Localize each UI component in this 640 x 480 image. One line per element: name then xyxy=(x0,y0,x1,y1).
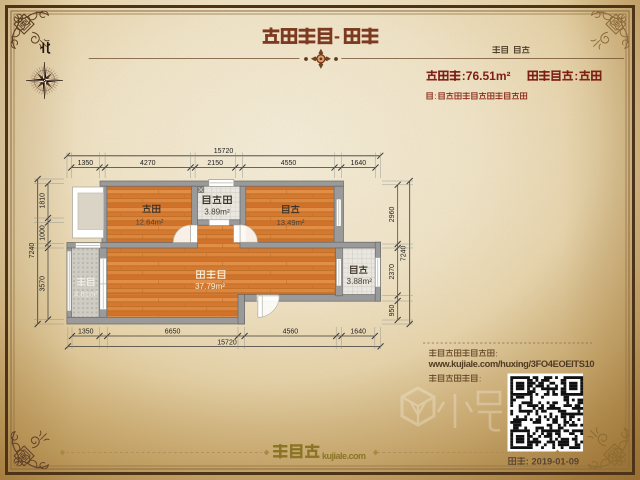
svg-text:13.49m²: 13.49m² xyxy=(277,218,305,227)
svg-text:15720: 15720 xyxy=(217,339,237,346)
svg-text:4560: 4560 xyxy=(283,328,299,335)
svg-text:6650: 6650 xyxy=(165,328,181,335)
svg-text:3.89m²: 3.89m² xyxy=(204,208,230,217)
svg-text:1350: 1350 xyxy=(78,160,94,167)
svg-text:2960: 2960 xyxy=(389,207,396,223)
svg-text:: 2019-01-09: : 2019-01-09 xyxy=(526,457,579,467)
svg-text:www.kujiale.com/huxing/3FO4EOE: www.kujiale.com/huxing/3FO4EOEITS10 xyxy=(428,359,595,369)
svg-text::: : xyxy=(496,349,498,359)
svg-text:1350: 1350 xyxy=(78,328,94,335)
svg-text:950: 950 xyxy=(389,305,396,317)
svg-text:76.51m²: 76.51m² xyxy=(466,69,511,83)
svg-text:3.88m²: 3.88m² xyxy=(347,277,373,286)
svg-text:4.81m²: 4.81m² xyxy=(74,290,98,299)
svg-text:3570: 3570 xyxy=(40,276,47,292)
svg-text:15720: 15720 xyxy=(214,148,234,155)
svg-text:-: - xyxy=(334,26,340,46)
svg-text:37.79m²: 37.79m² xyxy=(195,282,225,291)
svg-text:2150: 2150 xyxy=(207,160,223,167)
svg-text:12.64m²: 12.64m² xyxy=(136,218,164,227)
svg-text:1810: 1810 xyxy=(40,193,47,209)
svg-text::: : xyxy=(434,92,436,101)
svg-text::: : xyxy=(479,373,481,383)
svg-text::: : xyxy=(574,70,578,83)
svg-text:1000: 1000 xyxy=(40,225,47,241)
svg-text:4550: 4550 xyxy=(281,160,297,167)
svg-text:1640: 1640 xyxy=(350,328,366,335)
svg-text:1640: 1640 xyxy=(351,160,367,167)
svg-text:2370: 2370 xyxy=(389,264,396,280)
svg-text:7240: 7240 xyxy=(29,243,36,259)
svg-text:kujiale.com: kujiale.com xyxy=(322,451,366,461)
svg-text:4270: 4270 xyxy=(140,160,156,167)
